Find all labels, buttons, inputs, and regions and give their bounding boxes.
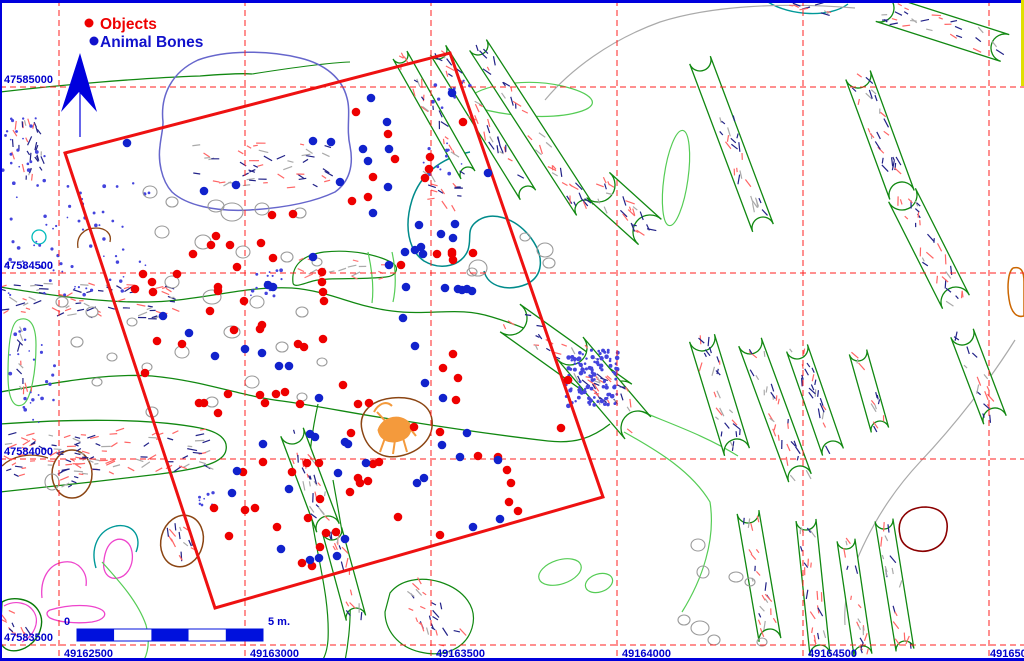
object-dot — [272, 390, 281, 399]
bone-dot — [185, 329, 194, 338]
bone-fragment-speckle — [30, 402, 32, 404]
hatch-mark — [453, 183, 456, 187]
hatch-mark — [287, 187, 295, 188]
hatch-mark — [857, 74, 862, 77]
hatch-mark — [22, 164, 24, 172]
object-dot — [449, 256, 458, 265]
hatch-mark — [98, 291, 103, 292]
bone-fragment-speckle — [607, 349, 610, 352]
object-dot — [514, 507, 523, 516]
hatch-mark — [294, 430, 295, 434]
hatch-mark — [277, 155, 285, 159]
hatch-mark — [802, 378, 803, 387]
hatch-mark — [12, 139, 13, 147]
object-dot — [352, 108, 361, 117]
bone-fragment-speckle — [446, 142, 448, 144]
bone-fragment-speckle — [50, 247, 53, 250]
hatch-mark — [238, 151, 243, 154]
bone-dot — [241, 345, 250, 354]
hatch-mark — [851, 596, 852, 600]
hatch-mark — [18, 343, 21, 352]
object-dot — [288, 468, 297, 477]
bone-fragment-speckle — [250, 294, 252, 296]
object-dot — [210, 504, 219, 513]
object-dot — [206, 307, 215, 316]
bone-fragment-speckle — [102, 211, 105, 214]
hatch-mark — [9, 297, 17, 302]
feature-strip — [849, 350, 888, 433]
hatch-mark — [594, 393, 599, 394]
bone-fragment-speckle — [89, 244, 92, 247]
bone-dot — [258, 349, 267, 358]
bone-fragment-speckle — [593, 396, 596, 399]
bone-fragment-speckle — [28, 350, 30, 352]
bone-fragment-speckle — [605, 384, 608, 387]
bone-dot — [415, 221, 424, 230]
bone-fragment-speckle — [70, 265, 73, 268]
bone-dot — [259, 440, 268, 449]
bone-fragment-speckle — [45, 380, 48, 383]
object-dot — [214, 409, 223, 418]
object-dot — [189, 250, 198, 259]
stone-outline — [155, 226, 169, 238]
hatch-mark — [744, 518, 745, 525]
object-dot — [289, 210, 298, 219]
bone-fragment-speckle — [431, 100, 435, 104]
bone-fragment-speckle — [102, 237, 105, 240]
object-dot — [261, 399, 270, 408]
bone-fragment-speckle — [35, 117, 37, 119]
bone-fragment-speckle — [33, 358, 35, 360]
hatch-mark — [23, 299, 27, 300]
bone-fragment-speckle — [606, 403, 609, 406]
bone-fragment-speckle — [32, 419, 34, 421]
object-dot — [346, 488, 355, 497]
bone-dot — [469, 523, 478, 532]
bone-fragment-speckle — [67, 217, 69, 219]
bone-dot — [384, 183, 393, 192]
object-dot — [316, 543, 325, 552]
bone-dot — [359, 145, 368, 154]
bone-fragment-speckle — [588, 403, 591, 406]
object-dot — [449, 350, 458, 359]
hatch-mark — [962, 291, 963, 298]
bone-dot — [123, 139, 132, 148]
bone-fragment-speckle — [82, 228, 84, 230]
hatch-mark — [932, 15, 941, 16]
object-dot — [149, 288, 158, 297]
bone-fragment-speckle — [570, 387, 573, 390]
bone-fragment-speckle — [115, 255, 117, 257]
hatch-mark — [278, 174, 285, 178]
stone-outline — [297, 393, 307, 401]
bone-fragment-speckle — [10, 218, 13, 221]
hatch-mark — [620, 387, 626, 388]
scale-bar-segment — [114, 629, 151, 641]
animal-figure-stroke — [403, 438, 407, 452]
bone-fragment-speckle — [94, 224, 98, 228]
bone-dot — [334, 469, 343, 478]
object-dot — [452, 396, 461, 405]
hatch-mark — [910, 643, 911, 648]
bone-fragment-speckle — [609, 364, 613, 368]
bone-fragment-speckle — [593, 361, 596, 364]
hatch-mark — [324, 180, 330, 182]
hatch-mark — [247, 146, 251, 148]
hatch-mark — [76, 303, 82, 304]
hatch-mark — [192, 145, 200, 146]
bone-fragment-speckle — [447, 172, 451, 176]
hatch-mark — [124, 442, 130, 443]
bone-dot — [200, 187, 209, 196]
bone-fragment-speckle — [38, 394, 40, 396]
object-dot — [364, 477, 373, 486]
object-dot — [298, 559, 307, 568]
hatch-mark — [17, 369, 22, 374]
object-dot — [240, 297, 249, 306]
bone-fragment-speckle — [33, 244, 35, 246]
bone-fragment-speckle — [18, 330, 21, 333]
scale-bar-zero-label: 0 — [64, 616, 70, 628]
bone-fragment-speckle — [423, 162, 425, 164]
hatch-mark — [73, 290, 82, 293]
object-dot — [304, 514, 313, 523]
object-dot — [281, 388, 290, 397]
bone-fragment-speckle — [67, 185, 70, 188]
y-axis-label: 47584000 — [4, 446, 53, 458]
object-dot — [300, 343, 309, 352]
hatch-mark — [361, 612, 362, 620]
hatch-mark — [846, 541, 847, 545]
hatch-mark — [167, 528, 168, 537]
hatch-mark — [303, 159, 308, 162]
bone-fragment-speckle — [111, 220, 114, 223]
bone-fragment-speckle — [52, 399, 55, 402]
bone-fragment-speckle — [16, 149, 19, 152]
bone-fragment-speckle — [582, 353, 584, 355]
bone-fragment-speckle — [606, 397, 609, 400]
bone-fragment-speckle — [573, 368, 577, 372]
bone-fragment-speckle — [74, 286, 76, 288]
bone-fragment-speckle — [445, 155, 448, 158]
bone-dot — [336, 178, 345, 187]
bone-fragment-speckle — [11, 240, 14, 243]
object-dot — [410, 423, 419, 432]
hatch-mark — [283, 166, 292, 169]
object-dot — [348, 197, 357, 206]
bone-fragment-speckle — [82, 293, 86, 297]
hatch-mark — [264, 156, 272, 161]
hatch-mark — [243, 185, 250, 186]
bone-fragment-speckle — [574, 400, 576, 402]
bone-fragment-speckle — [567, 366, 571, 370]
bone-fragment-speckle — [600, 399, 604, 403]
hatch-mark — [990, 415, 991, 423]
bone-fragment-speckle — [90, 289, 93, 292]
bone-dot — [411, 342, 420, 351]
bone-fragment-speckle — [211, 491, 214, 494]
legend-objects-label: Objects — [100, 16, 157, 33]
bone-fragment-speckle — [596, 400, 599, 403]
hatch-mark — [608, 181, 610, 185]
bone-dot — [468, 287, 477, 296]
bone-dot — [364, 157, 373, 166]
hatch-mark — [40, 167, 42, 171]
hatch-mark — [148, 306, 153, 307]
hatch-mark — [826, 446, 830, 454]
hatch-mark — [92, 469, 100, 470]
hatch-mark — [790, 349, 793, 352]
bone-dot — [285, 362, 294, 371]
hatch-mark — [306, 149, 313, 153]
bone-fragment-speckle — [139, 261, 141, 263]
hatch-mark — [442, 201, 447, 209]
hatch-mark — [34, 301, 42, 304]
bone-fragment-speckle — [17, 246, 21, 250]
bone-fragment-speckle — [27, 162, 30, 165]
hatch-mark — [857, 359, 858, 363]
bone-dot — [362, 459, 371, 468]
bone-fragment-speckle — [590, 355, 594, 359]
hatch-mark — [204, 158, 210, 159]
bone-dot — [456, 453, 465, 462]
hatch-mark — [737, 168, 738, 172]
hatch-mark — [253, 165, 257, 167]
object-dot — [454, 374, 463, 383]
stone-outline — [221, 203, 243, 221]
bone-fragment-speckle — [272, 275, 274, 277]
object-dot — [503, 466, 512, 475]
hatch-mark — [77, 309, 84, 310]
bone-fragment-speckle — [8, 372, 12, 376]
stone-outline — [296, 307, 308, 317]
y-axis-label: 47584500 — [4, 260, 53, 272]
object-dot — [207, 241, 216, 250]
bone-fragment-speckle — [93, 211, 96, 214]
bone-fragment-speckle — [578, 390, 582, 394]
hatch-mark — [287, 161, 293, 163]
stone-outline — [729, 572, 743, 582]
hatch-mark — [900, 199, 902, 204]
bone-fragment-speckle — [199, 503, 201, 505]
bone-fragment-speckle — [203, 498, 205, 500]
bone-fragment-speckle — [98, 224, 100, 226]
bone-fragment-speckle — [603, 402, 607, 406]
bone-fragment-speckle — [585, 357, 587, 359]
bone-fragment-speckle — [10, 117, 13, 120]
legend-bones-label: Animal Bones — [100, 34, 203, 51]
hatch-mark — [65, 464, 72, 465]
hatch-mark — [65, 309, 71, 311]
hatch-mark — [452, 205, 455, 211]
bone-fragment-speckle — [63, 293, 66, 296]
object-dot — [339, 381, 348, 390]
hatch-mark — [258, 165, 264, 166]
bone-fragment-speckle — [48, 383, 51, 386]
bone-fragment-speckle — [42, 179, 45, 182]
hatch-mark — [12, 152, 15, 159]
object-dot — [226, 241, 235, 250]
stone-outline — [71, 337, 83, 347]
bone-fragment-speckle — [4, 134, 7, 137]
bone-dot — [413, 479, 422, 488]
bone-fragment-speckle — [566, 355, 570, 359]
bone-fragment-speckle — [611, 394, 614, 397]
bone-fragment-speckle — [38, 421, 40, 423]
bone-fragment-speckle — [578, 351, 582, 355]
bone-dot — [277, 545, 286, 554]
stone-outline — [56, 297, 68, 307]
object-dot — [322, 529, 331, 538]
hatch-mark — [171, 539, 175, 547]
hatch-mark — [818, 390, 819, 397]
hatch-mark — [21, 312, 26, 313]
object-dot — [316, 495, 325, 504]
hatch-mark — [175, 523, 176, 530]
hatch-mark — [331, 532, 332, 540]
object-dot — [315, 459, 324, 468]
hatch-mark — [503, 324, 505, 329]
bone-fragment-speckle — [577, 396, 581, 400]
hatch-mark — [790, 475, 795, 481]
feature-strip — [846, 71, 914, 200]
hatch-mark — [26, 308, 30, 309]
hatch-mark — [86, 291, 91, 292]
object-dot — [557, 424, 566, 433]
hatch-mark — [443, 139, 444, 144]
stone-outline — [92, 378, 102, 386]
hatch-mark — [67, 314, 76, 316]
object-dot — [153, 337, 162, 346]
bone-fragment-speckle — [199, 499, 201, 501]
contour-ellipse — [32, 230, 46, 244]
bone-fragment-speckle — [605, 355, 609, 359]
bone-fragment-speckle — [36, 184, 39, 187]
bone-fragment-speckle — [279, 268, 283, 272]
hatch-mark — [67, 293, 73, 296]
hatch-mark — [300, 144, 304, 145]
object-dot — [347, 429, 356, 438]
contour-path — [1008, 268, 1024, 317]
contour-path — [899, 507, 947, 551]
bone-dot — [484, 169, 493, 178]
object-dot — [259, 458, 268, 467]
hatch-mark — [27, 151, 29, 155]
scale-bar-end-label: 5 m. — [268, 616, 290, 628]
hatch-mark — [955, 332, 957, 341]
bone-fragment-speckle — [85, 287, 87, 289]
bone-fragment-speckle — [267, 275, 269, 277]
hatch-mark — [788, 423, 789, 429]
bone-fragment-speckle — [109, 278, 112, 281]
bone-fragment-speckle — [439, 168, 441, 170]
bone-fragment-speckle — [16, 196, 18, 198]
hatch-mark — [817, 591, 818, 600]
hatch-mark — [259, 150, 269, 152]
hatch-mark — [427, 198, 434, 199]
object-dot — [318, 268, 327, 277]
bone-dot — [315, 554, 324, 563]
bone-fragment-speckle — [23, 406, 26, 409]
object-dot — [364, 193, 373, 202]
hatch-mark — [946, 301, 953, 306]
bone-fragment-speckle — [30, 391, 32, 393]
legend-bones-dot — [90, 37, 99, 46]
object-dot — [178, 340, 187, 349]
bone-fragment-speckle — [29, 160, 32, 163]
object-dot — [224, 390, 233, 399]
hatch-mark — [302, 154, 311, 155]
contour-path — [392, 252, 395, 302]
hatch-mark — [992, 41, 996, 46]
bone-fragment-speckle — [570, 355, 574, 359]
stone-outline — [537, 243, 553, 257]
bone-fragment-speckle — [41, 344, 43, 346]
map-features-layer — [0, 0, 1024, 661]
feature-strip — [875, 519, 914, 652]
hatch-mark — [24, 120, 25, 126]
hatch-mark — [117, 299, 125, 301]
hatch-mark — [48, 461, 54, 462]
bone-fragment-speckle — [461, 163, 463, 165]
object-dot — [436, 428, 445, 437]
bone-fragment-speckle — [436, 165, 439, 168]
contour-ellipse — [583, 570, 615, 596]
hatch-mark — [249, 180, 256, 181]
hatch-mark — [313, 184, 318, 187]
hatch-mark — [945, 279, 946, 288]
hatch-mark — [431, 184, 437, 186]
scale-bar-segment — [226, 629, 263, 641]
object-dot — [391, 155, 400, 164]
hatch-mark — [189, 540, 192, 546]
stone-outline — [708, 635, 720, 645]
object-dot — [303, 459, 312, 468]
hatch-mark — [731, 442, 733, 447]
stone-outline — [281, 252, 293, 262]
hatch-mark — [322, 153, 329, 156]
bone-fragment-speckle — [27, 168, 31, 172]
object-dot — [141, 369, 150, 378]
hatch-mark — [84, 303, 90, 306]
hatch-mark — [804, 349, 805, 354]
hatch-mark — [29, 297, 36, 300]
object-dot — [459, 118, 468, 127]
bone-fragment-speckle — [29, 124, 32, 127]
hatch-mark — [34, 122, 36, 127]
object-dot — [394, 513, 403, 522]
bone-fragment-speckle — [53, 364, 56, 367]
bone-dot — [385, 261, 394, 270]
bone-fragment-speckle — [207, 493, 210, 496]
object-dot — [421, 174, 430, 183]
hatch-mark — [26, 138, 28, 142]
contour-ellipse — [657, 129, 694, 227]
bone-fragment-speckle — [574, 362, 577, 365]
bone-fragment-speckle — [43, 214, 46, 217]
bone-fragment-speckle — [45, 224, 47, 226]
stone-outline — [678, 615, 690, 625]
hatch-mark — [247, 179, 255, 180]
object-dot — [225, 532, 234, 541]
hatch-mark — [94, 464, 98, 465]
feature-strip — [889, 188, 970, 309]
stone-outline — [467, 268, 477, 276]
hatch-mark — [904, 633, 905, 642]
bone-fragment-speckle — [588, 374, 591, 377]
hatch-mark — [33, 123, 34, 128]
hatch-mark — [721, 431, 722, 436]
